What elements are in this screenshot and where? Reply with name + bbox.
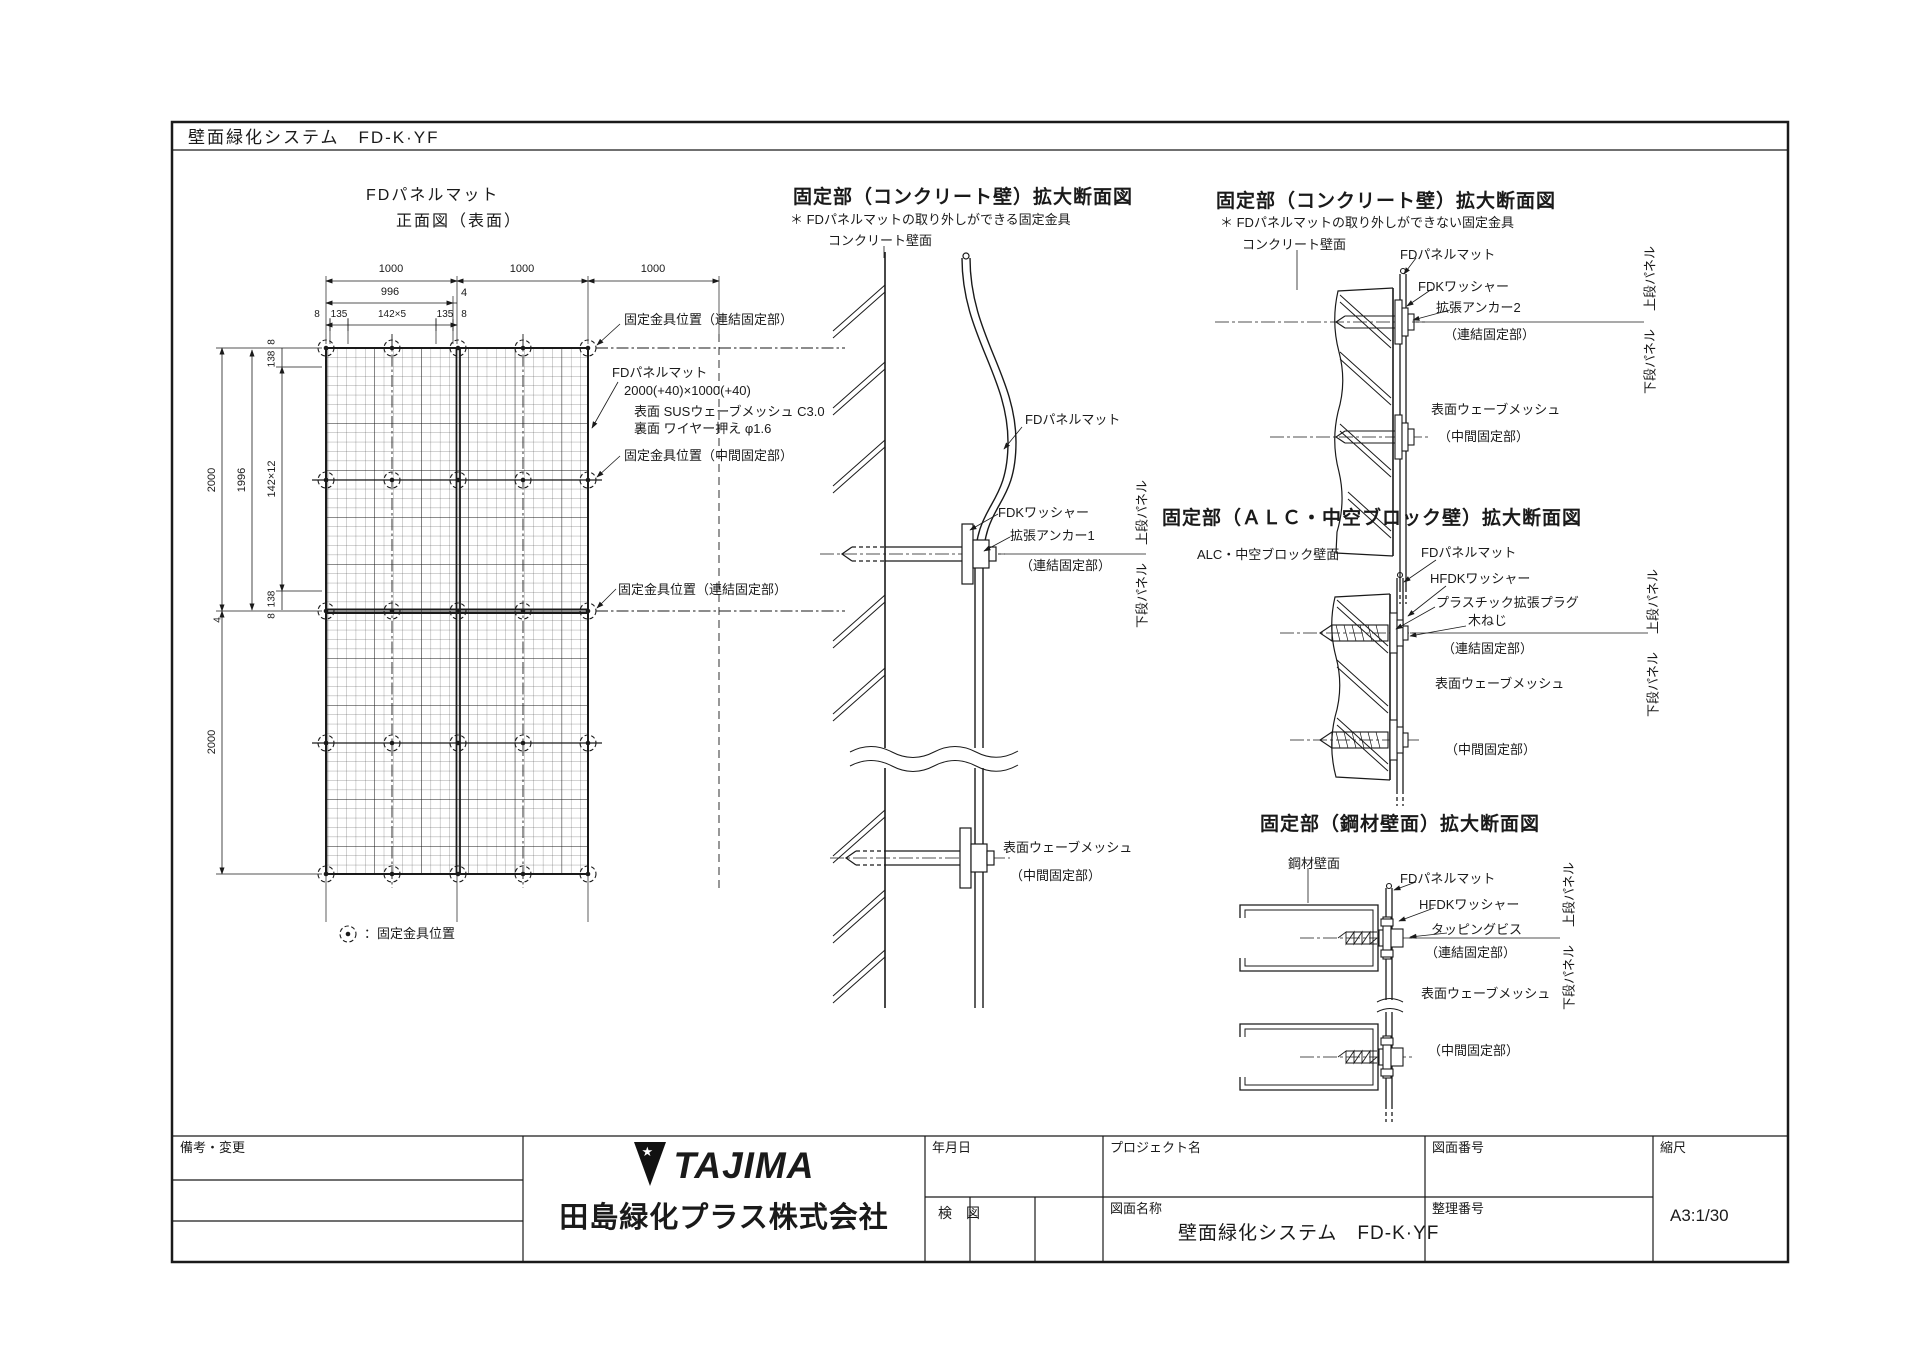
titleblock-drawing-no-label: 図面番号 <box>1432 1140 1484 1156</box>
tajima-star-icon: ★ <box>642 1144 654 1160</box>
section3-panel-labels: 下段パネル 上段パネル <box>1643 569 1662 717</box>
titleblock-ref-no-label: 整理番号 <box>1432 1201 1484 1217</box>
section4-washer-label: HFDKワッシャー <box>1419 897 1519 913</box>
section3-plug-label: プラスチック拡張プラグ <box>1436 595 1579 611</box>
section2-anchor-label: 拡張アンカー2 <box>1436 300 1521 316</box>
section3-upper-panel: 上段パネル <box>1643 569 1662 634</box>
section2-upper-panel: 上段パネル <box>1640 246 1659 311</box>
dim-4: 4 <box>461 287 467 299</box>
section3-lower-panel: 下段パネル <box>1643 652 1662 717</box>
section2-panel-labels: 下段パネル 上段パネル <box>1640 246 1659 394</box>
section1-title: 固定部（コンクリート壁）拡大断面図 <box>793 186 1133 210</box>
legend-fixing-mark: ：固定金具位置 <box>364 926 455 942</box>
titleblock-scale-label: 縮尺 <box>1660 1140 1686 1156</box>
label-fix-top: 固定金具位置（連結固定部） <box>624 312 793 328</box>
dim-138-top: 138 <box>267 351 278 368</box>
section1-note: ＊ FDパネルマットの取り外しができる固定金具 <box>790 212 1071 228</box>
label-mat-size: 2000(+40)×1000(+40) <box>624 383 751 399</box>
section3-screw-label: 木ねじ <box>1468 613 1507 629</box>
titleblock-logo-cell: ★ TAJIMA 田島緑化プラス株式会社 <box>523 1139 925 1261</box>
dim-top-1000-1: 1000 <box>379 263 403 275</box>
section4-lower-panel: 下段パネル <box>1559 945 1578 1010</box>
dim-142x12: 142×12 <box>266 460 278 497</box>
sheet-title: 壁面緑化システム FD-K·YF <box>188 127 440 148</box>
label-fix-mid: 固定金具位置（中間固定部） <box>624 448 793 464</box>
section1-joint-label: （連結固定部） <box>1020 558 1111 574</box>
section1-wall-label: コンクリート壁面 <box>828 233 932 249</box>
section4-mesh-label: 表面ウェーブメッシュ <box>1421 986 1550 1002</box>
section2-mid-label: （中間固定部） <box>1438 429 1529 445</box>
section3-mat-label: FDパネルマット <box>1421 545 1516 561</box>
company-name: 田島緑化プラス株式会社 <box>559 1194 888 1236</box>
section2-mesh-label: 表面ウェーブメッシュ <box>1431 402 1560 418</box>
section3-wall-label: ALC・中空ブロック壁面 <box>1197 547 1339 563</box>
section2-wall-label: コンクリート壁面 <box>1242 237 1346 253</box>
section2-washer-label: FDKワッシャー <box>1418 279 1509 295</box>
section3-mid-label: （中間固定部） <box>1445 742 1536 758</box>
section3-title: 固定部（ＡＬＣ・中空ブロック壁）拡大断面図 <box>1162 507 1582 531</box>
dim-1996: 1996 <box>236 468 248 492</box>
label-surface-mesh: 表面 SUSウェーブメッシュ C3.0 <box>634 404 825 420</box>
section1-anchor-label: 拡張アンカー1 <box>1010 528 1095 544</box>
dim-996: 996 <box>381 286 399 298</box>
dim-top-1000-2: 1000 <box>510 263 534 275</box>
dim-8-top: 8 <box>267 339 278 345</box>
section4-title: 固定部（鋼材壁面）拡大断面図 <box>1260 813 1540 837</box>
dim-8-mid: 8 <box>267 613 278 619</box>
section3-mesh-label: 表面ウェーブメッシュ <box>1435 676 1564 692</box>
front-view-title-line2: 正面図（表面） <box>396 212 522 232</box>
dim-142x5: 142×5 <box>378 309 406 320</box>
titleblock-project-label: プロジェクト名 <box>1110 1140 1201 1156</box>
front-view-title-line1: FDパネルマット <box>366 186 499 206</box>
section4-panel-labels: 下段パネル 上段パネル <box>1559 862 1578 1010</box>
titleblock-remarks-label: 備考・変更 <box>180 1140 245 1156</box>
dim-top-1000-3: 1000 <box>641 263 665 275</box>
section1-mid-label: （中間固定部） <box>1010 868 1101 884</box>
tajima-logo: ★ TAJIMA <box>634 1142 815 1192</box>
section4-wall-label: 鋼材壁面 <box>1288 856 1340 872</box>
dim-138-mid: 138 <box>267 591 278 608</box>
section1-lower-panel: 下段パネル <box>1132 563 1151 628</box>
section2-joint-label: （連結固定部） <box>1444 327 1535 343</box>
section1-washer-label: FDKワッシャー <box>998 505 1089 521</box>
section4-screw-label: タッピングビス <box>1431 922 1522 938</box>
dim-2000-bottom: 2000 <box>206 730 218 754</box>
section2-mat-label: FDパネルマット <box>1400 247 1495 263</box>
section1-panel-labels: 下段パネル 上段パネル <box>1132 480 1151 628</box>
section1-upper-panel: 上段パネル <box>1132 480 1151 545</box>
titleblock-scale-value: A3:1/30 <box>1670 1205 1729 1226</box>
label-mat: FDパネルマット <box>612 365 707 381</box>
section4-mat-label: FDパネルマット <box>1400 871 1495 887</box>
section4-upper-panel: 上段パネル <box>1559 862 1578 927</box>
section2-note: ＊ FDパネルマットの取り外しができない固定金具 <box>1220 215 1514 231</box>
dim-8-right: 8 <box>461 309 467 320</box>
tajima-triangle-icon: ★ <box>634 1142 666 1186</box>
dim-135-left: 135 <box>331 309 348 320</box>
titleblock-drawing-name-value: 壁面緑化システム FD-K·YF <box>1178 1222 1439 1246</box>
dim-4-mid: 4 <box>213 617 224 623</box>
titleblock-drawing-name-label: 図面名称 <box>1110 1201 1162 1217</box>
dim-2000-top: 2000 <box>206 468 218 492</box>
section2-title: 固定部（コンクリート壁）拡大断面図 <box>1216 190 1556 214</box>
label-fix-joint: 固定金具位置（連結固定部） <box>618 582 787 598</box>
drawing-sheet: 壁面緑化システム FD-K·YF FDパネルマット 正面図（表面） 1000 1… <box>0 0 1920 1358</box>
label-back-wire: 裏面 ワイヤー押え φ1.6 <box>634 421 771 437</box>
dim-135-right: 135 <box>437 309 454 320</box>
section1-mat-label: FDパネルマット <box>1025 412 1120 428</box>
section3-joint-label: （連結固定部） <box>1442 641 1533 657</box>
tajima-logo-text: TAJIMA <box>674 1142 815 1190</box>
section1-mesh-label: 表面ウェーブメッシュ <box>1003 840 1132 856</box>
titleblock-date-label: 年月日 <box>932 1140 971 1156</box>
section4-mid-label: （中間固定部） <box>1428 1043 1519 1059</box>
titleblock-check-label: 検 図 <box>938 1205 980 1223</box>
dim-8-left: 8 <box>314 309 320 320</box>
section2-lower-panel: 下段パネル <box>1640 329 1659 394</box>
section3-washer-label: HFDKワッシャー <box>1430 571 1530 587</box>
section4-joint-label: （連結固定部） <box>1425 945 1516 961</box>
